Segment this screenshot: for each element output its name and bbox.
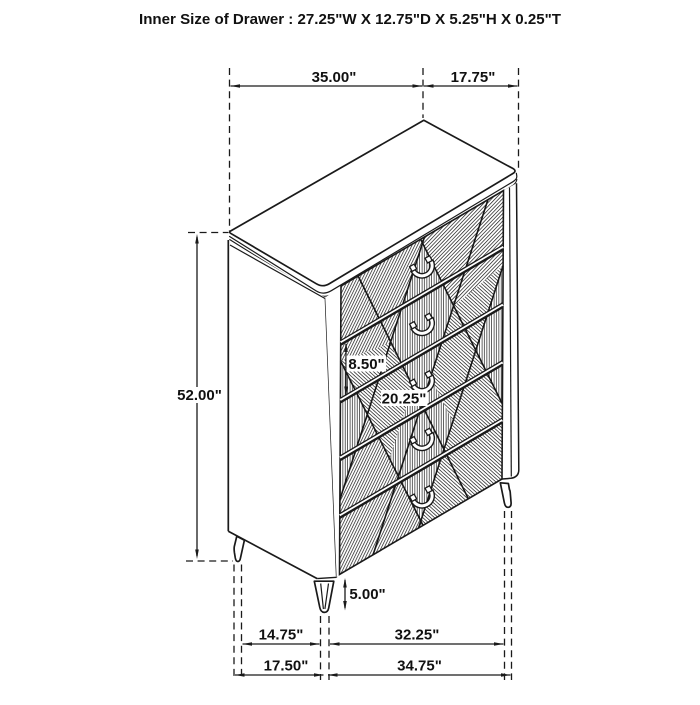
svg-text:52.00": 52.00" [177, 387, 222, 404]
svg-text:20.25": 20.25" [382, 390, 427, 407]
svg-text:34.75": 34.75" [397, 658, 442, 675]
svg-text:17.50": 17.50" [264, 658, 309, 675]
svg-text:5.00": 5.00" [349, 586, 385, 603]
svg-text:17.75": 17.75" [451, 69, 496, 86]
svg-text:8.50": 8.50" [348, 356, 384, 373]
svg-text:Inner Size of Drawer : 27.25"W: Inner Size of Drawer : 27.25"W X 12.75"D… [139, 11, 561, 28]
svg-text:14.75": 14.75" [259, 627, 304, 644]
svg-text:35.00": 35.00" [312, 69, 357, 86]
svg-text:32.25": 32.25" [395, 627, 440, 644]
